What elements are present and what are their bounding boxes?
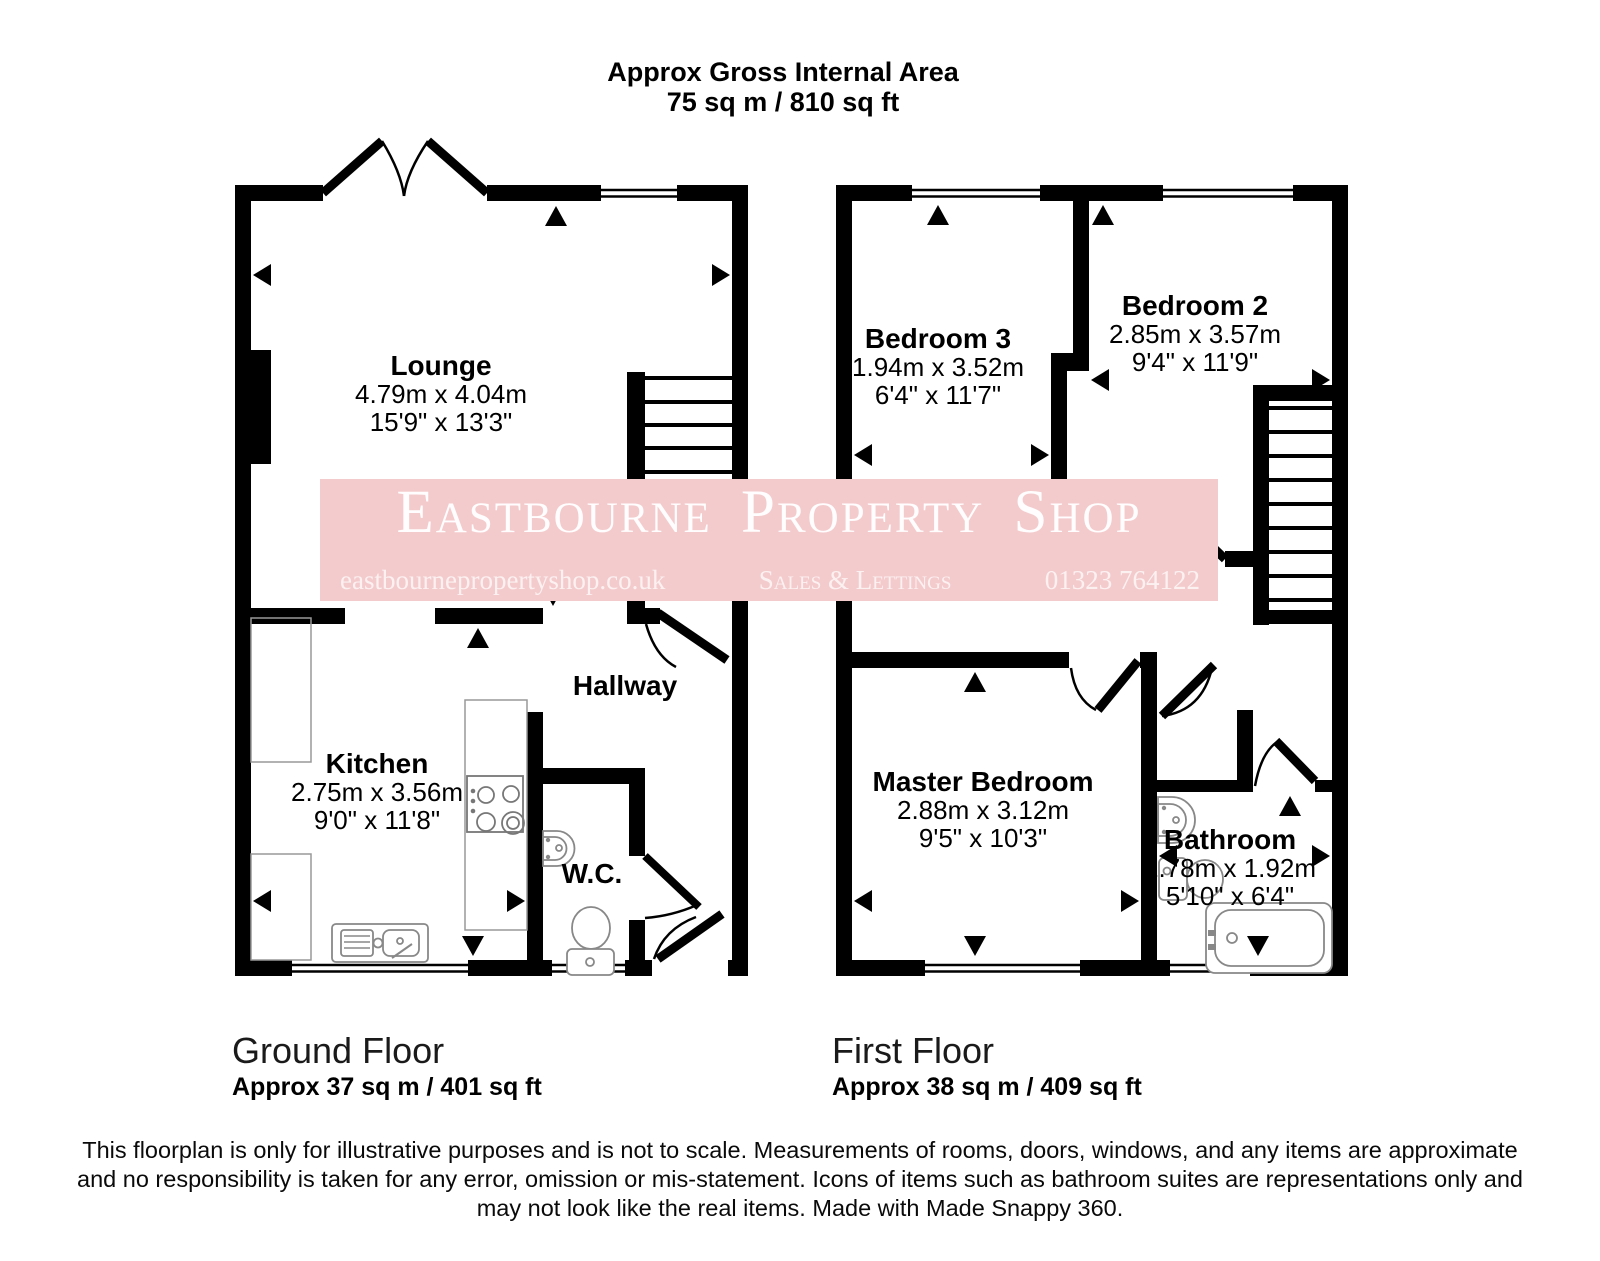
- disclaimer-line-1: This floorplan is only for illustrative …: [0, 1136, 1600, 1165]
- room-name: W.C.: [562, 860, 623, 888]
- room-dim-imperial: 9'5" x 10'3": [873, 824, 1094, 852]
- room-dim-imperial: 9'4" x 11'9": [1109, 348, 1281, 376]
- room-dim-imperial: 9'0" x 11'8": [291, 806, 463, 834]
- ground-floor-title: Ground Floor: [232, 1030, 444, 1072]
- bedroom3-label: Bedroom 3 1.94m x 3.52m 6'4" x 11'7": [852, 325, 1024, 409]
- first-floor-title: First Floor: [832, 1030, 994, 1072]
- room-dim-metric: 2.88m x 3.12m: [873, 796, 1094, 824]
- first-floor-stairs: [1269, 408, 1332, 600]
- header-title: Approx Gross Internal Area: [607, 57, 959, 87]
- watermark-phone: 01323 764122: [1045, 565, 1200, 596]
- disclaimer-line-2: and no responsibility is taken for any e…: [0, 1165, 1600, 1194]
- room-name: Hallway: [573, 672, 677, 700]
- lounge-label: Lounge 4.79m x 4.04m 15'9" x 13'3": [355, 352, 527, 436]
- watermark-tagline: Sales & Lettings: [759, 565, 952, 596]
- room-dim-metric: 1.94m x 3.52m: [852, 353, 1024, 381]
- bedroom2-label: Bedroom 2 2.85m x 3.57m 9'4" x 11'9": [1109, 292, 1281, 376]
- landing-door: [1162, 665, 1214, 716]
- floorplan-page: Eastbourne Property Shop eastbourneprope…: [0, 0, 1600, 1261]
- room-dim-metric: 4.79m x 4.04m: [355, 380, 527, 408]
- kitchen-label: Kitchen 2.75m x 3.56m 9'0" x 11'8": [291, 750, 463, 834]
- master-bedroom-door: [1071, 661, 1138, 710]
- disclaimer-line-3: may not look like the real items. Made w…: [0, 1194, 1600, 1223]
- wc-toilet-icon: [567, 907, 614, 975]
- bathroom-door: [1255, 741, 1315, 786]
- kitchen-sink-icon: [332, 924, 428, 962]
- chimney-breast: [251, 350, 271, 464]
- bathroom-label: Bathroom 1.78m x 1.92m 5'10" x 6'4": [1144, 826, 1316, 910]
- gross-internal-area-header: Approx Gross Internal Area 75 sq m / 810…: [607, 57, 959, 117]
- room-name: Master Bedroom: [873, 768, 1094, 796]
- room-name: Lounge: [355, 352, 527, 380]
- wc-label: W.C.: [562, 860, 623, 888]
- french-door: [323, 141, 487, 196]
- first-floor-area: Approx 38 sq m / 409 sq ft: [832, 1073, 1142, 1102]
- room-dim-imperial: 15'9" x 13'3": [355, 408, 527, 436]
- hob-icon: [467, 776, 524, 834]
- ground-floor-area: Approx 37 sq m / 401 sq ft: [232, 1073, 542, 1102]
- watermark-banner: Eastbourne Property Shop eastbourneprope…: [320, 479, 1218, 601]
- bathtub-icon: [1206, 903, 1332, 973]
- room-dim-metric: 1.78m x 1.92m: [1144, 854, 1316, 882]
- room-dim-imperial: 5'10" x 6'4": [1144, 882, 1316, 910]
- master-bedroom-label: Master Bedroom 2.88m x 3.12m 9'5" x 10'3…: [873, 768, 1094, 852]
- room-dim-metric: 2.85m x 3.57m: [1109, 320, 1281, 348]
- room-dim-metric: 2.75m x 3.56m: [291, 778, 463, 806]
- room-name: Bedroom 2: [1109, 292, 1281, 320]
- room-name: Kitchen: [291, 750, 463, 778]
- room-name: Bedroom 3: [852, 325, 1024, 353]
- wc-door: [645, 856, 699, 918]
- watermark-brand-title: Eastbourne Property Shop: [320, 481, 1218, 545]
- room-name: Bathroom: [1144, 826, 1316, 854]
- watermark-content: Eastbourne Property Shop eastbourneprope…: [320, 479, 1218, 601]
- hallway-label: Hallway: [573, 672, 677, 700]
- front-door: [654, 914, 722, 959]
- watermark-subtitle-row: eastbournepropertyshop.co.uk Sales & Let…: [320, 565, 1218, 601]
- watermark-website: eastbournepropertyshop.co.uk: [340, 565, 665, 596]
- header-area: 75 sq m / 810 sq ft: [607, 87, 959, 117]
- disclaimer-text: This floorplan is only for illustrative …: [0, 1136, 1600, 1223]
- room-dim-imperial: 6'4" x 11'7": [852, 381, 1024, 409]
